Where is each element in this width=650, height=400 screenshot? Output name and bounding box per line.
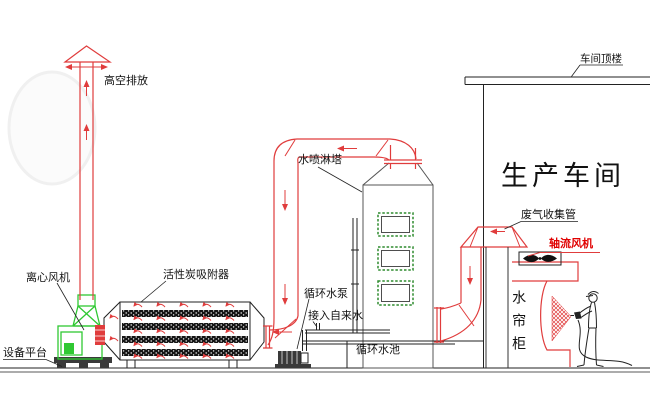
- carbon-bed: [122, 336, 248, 343]
- label-workshop: 生产车间: [501, 161, 625, 192]
- ground-line: [0, 368, 650, 372]
- process-flow-diagram: 高空排放 离心风机 设备平台 活性炭吸附器 水喷淋塔 循环水泵 接入自来水 循环…: [0, 0, 650, 400]
- label-circulating-pump: 循环水泵: [304, 288, 348, 301]
- tower-window: [378, 247, 413, 270]
- paint-spray-cone: [552, 296, 571, 341]
- label-workshop-roof: 车间顶楼: [580, 53, 622, 65]
- tower-side-flange: [434, 307, 444, 343]
- carbon-bed: [122, 323, 248, 330]
- label-circulating-pool: 循环水池: [356, 344, 400, 357]
- label-equipment-platform: 设备平台: [3, 347, 47, 360]
- worker-figure: [571, 291, 633, 366]
- diagram-canvas: [0, 0, 650, 400]
- circulating-pump: [275, 351, 311, 368]
- label-water-curtain: 水帘柜: [510, 290, 526, 359]
- axial-fan-leader: [528, 253, 600, 257]
- carbon-bed: [122, 349, 248, 356]
- tower-window: [378, 213, 413, 236]
- label-centrifugal-fan: 离心风机: [26, 272, 70, 285]
- label-carbon-adsorber: 活性炭吸附器: [163, 269, 229, 282]
- label-gas-collection: 废气收集管: [521, 209, 576, 222]
- spray-tower: [363, 163, 433, 368]
- label-axial-fan: 轴流风机: [549, 238, 593, 251]
- fan-inlet-flange: [95, 325, 105, 345]
- label-high-discharge: 高空排放: [104, 75, 148, 88]
- stack-rain-cap: [65, 46, 110, 66]
- watermark: [9, 72, 95, 184]
- centrifugal-fan: [58, 295, 105, 359]
- label-spray-tower: 水喷淋塔: [298, 154, 342, 167]
- label-tap-water: 接入自来水: [308, 310, 363, 323]
- axial-fan: [519, 252, 561, 265]
- tower-window: [378, 281, 413, 305]
- carbon-bed: [122, 310, 248, 317]
- carbon-adsorber: [104, 302, 273, 368]
- air-hose: [578, 320, 632, 366]
